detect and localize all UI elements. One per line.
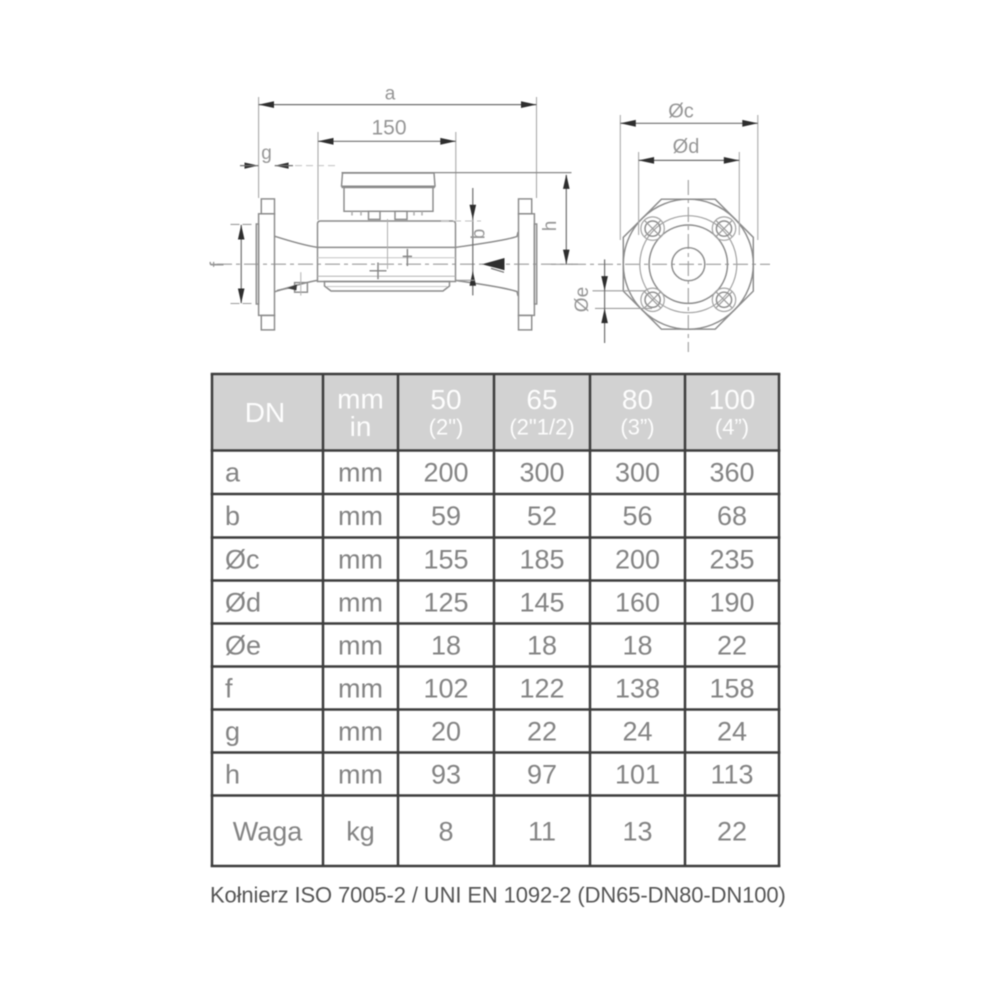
svg-text:80: 80 <box>622 384 653 415</box>
svg-text:100: 100 <box>709 384 756 415</box>
svg-text:Waga: Waga <box>233 817 304 847</box>
svg-text:300: 300 <box>615 458 660 488</box>
svg-text:158: 158 <box>709 674 754 704</box>
svg-text:Øc: Øc <box>668 101 694 123</box>
svg-text:93: 93 <box>431 760 461 790</box>
svg-text:mm: mm <box>338 458 383 488</box>
svg-text:200: 200 <box>423 458 468 488</box>
svg-text:56: 56 <box>622 501 652 531</box>
svg-text:(3”): (3”) <box>620 415 654 440</box>
svg-text:g: g <box>225 717 240 747</box>
svg-text:(2"1/2): (2"1/2) <box>509 415 574 440</box>
svg-text:22: 22 <box>527 717 557 747</box>
svg-text:b: b <box>469 229 490 240</box>
svg-text:68: 68 <box>717 501 747 531</box>
svg-text:59: 59 <box>431 501 461 531</box>
svg-text:150: 150 <box>371 117 406 140</box>
svg-text:kg: kg <box>346 817 375 847</box>
svg-text:mm: mm <box>337 384 384 415</box>
svg-text:Øe: Øe <box>225 631 261 661</box>
svg-text:24: 24 <box>622 717 652 747</box>
svg-text:h: h <box>540 221 561 232</box>
svg-text:102: 102 <box>423 674 468 704</box>
svg-text:360: 360 <box>709 458 754 488</box>
svg-text:Øc: Øc <box>225 545 260 575</box>
svg-text:mm: mm <box>338 501 383 531</box>
svg-text:DN: DN <box>245 397 285 428</box>
svg-text:300: 300 <box>519 458 564 488</box>
svg-text:22: 22 <box>717 631 747 661</box>
svg-text:160: 160 <box>615 588 660 618</box>
svg-text:f: f <box>225 674 233 704</box>
svg-text:50: 50 <box>430 384 461 415</box>
svg-text:65: 65 <box>526 384 557 415</box>
svg-text:mm: mm <box>338 545 383 575</box>
svg-text:mm: mm <box>338 674 383 704</box>
svg-text:113: 113 <box>710 760 753 790</box>
svg-text:138: 138 <box>615 674 660 704</box>
svg-text:mm: mm <box>338 760 383 790</box>
svg-text:Kołnierz ISO 7005-2 / UNI EN 1: Kołnierz ISO 7005-2 / UNI EN 1092-2 (DN6… <box>210 883 786 908</box>
svg-text:b: b <box>225 501 240 531</box>
svg-text:125: 125 <box>423 588 468 618</box>
svg-text:11: 11 <box>528 817 556 847</box>
svg-text:190: 190 <box>709 588 754 618</box>
svg-text:mm: mm <box>338 717 383 747</box>
svg-text:13: 13 <box>622 817 652 847</box>
svg-text:20: 20 <box>431 717 461 747</box>
svg-text:mm: mm <box>338 588 383 618</box>
svg-text:18: 18 <box>622 631 652 661</box>
svg-text:Ød: Ød <box>673 136 700 158</box>
svg-text:mm: mm <box>338 631 383 661</box>
svg-text:a: a <box>225 458 241 488</box>
svg-text:Øe: Øe <box>572 287 593 312</box>
svg-text:18: 18 <box>527 631 557 661</box>
svg-text:(2"): (2") <box>429 415 464 440</box>
svg-text:122: 122 <box>519 674 564 704</box>
svg-text:101: 101 <box>615 760 660 790</box>
svg-text:in: in <box>350 411 372 442</box>
svg-text:8: 8 <box>438 817 453 847</box>
svg-text:g: g <box>261 143 272 164</box>
svg-text:185: 185 <box>519 545 564 575</box>
svg-text:235: 235 <box>709 545 754 575</box>
svg-text:155: 155 <box>423 545 468 575</box>
svg-text:52: 52 <box>527 501 557 531</box>
svg-text:(4”): (4”) <box>715 415 749 440</box>
svg-text:97: 97 <box>527 760 557 790</box>
svg-text:Ød: Ød <box>225 588 261 618</box>
svg-text:145: 145 <box>519 588 564 618</box>
svg-text:18: 18 <box>431 631 461 661</box>
svg-text:h: h <box>225 760 240 790</box>
svg-text:a: a <box>385 84 396 105</box>
svg-text:22: 22 <box>717 817 747 847</box>
svg-text:f: f <box>208 261 229 267</box>
svg-text:200: 200 <box>615 545 660 575</box>
svg-text:24: 24 <box>717 717 747 747</box>
